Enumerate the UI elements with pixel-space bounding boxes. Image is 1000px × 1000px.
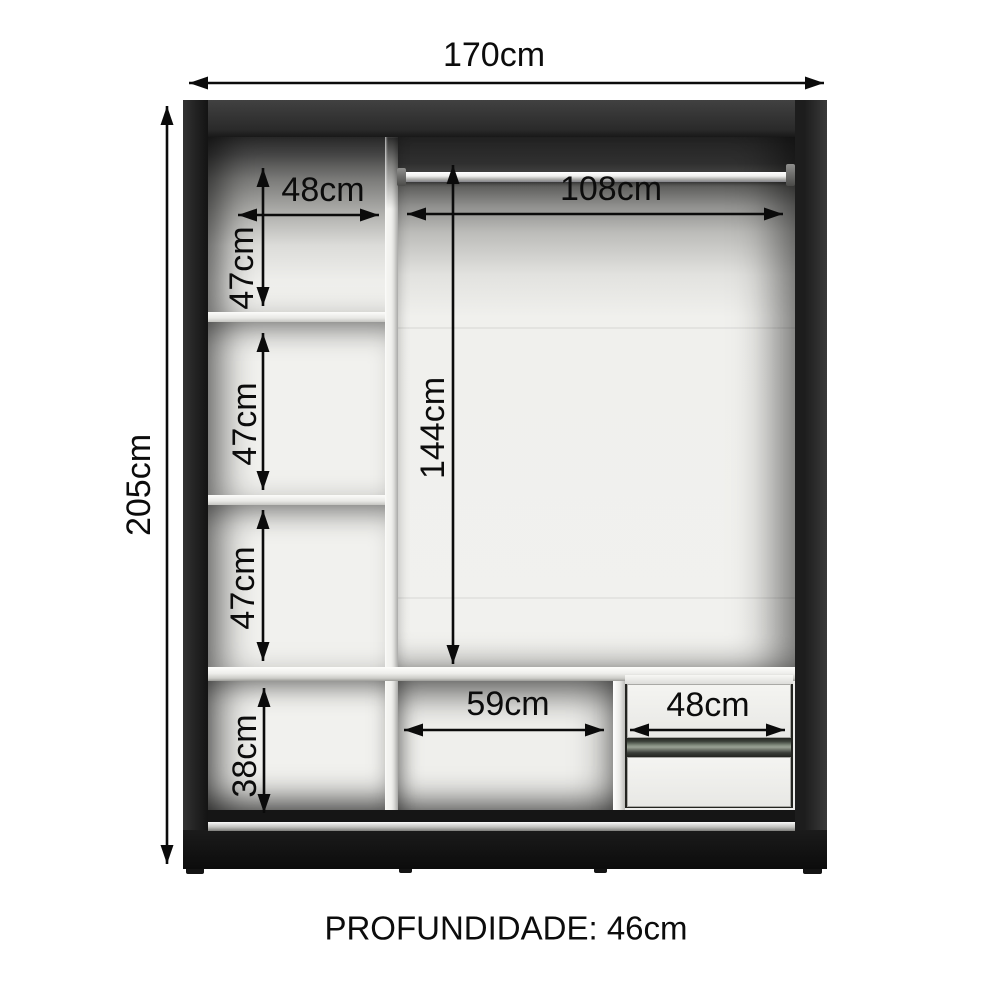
frame-top-band [183, 100, 827, 137]
center-divider-panel [385, 137, 398, 822]
drawer-bottom [627, 757, 791, 807]
foot-center-left [399, 869, 412, 873]
shelf-1 [208, 312, 385, 322]
frame-right-band [795, 100, 827, 869]
label-total-width: 170cm [443, 38, 545, 72]
foot-left [186, 869, 204, 874]
foot-right [803, 869, 822, 874]
rod-bracket-right [786, 164, 795, 186]
rod-bracket-left [397, 168, 406, 186]
label-total-height: 205cm [122, 434, 156, 536]
label-bottom-middle-width: 59cm [466, 687, 549, 721]
shelf-2 [208, 495, 385, 505]
interior-floor [208, 810, 795, 822]
depth-note: PROFUNDIDADE: 46cm [324, 912, 687, 945]
label-compartment3-height: 47cm [226, 546, 260, 629]
drawer-gap [627, 738, 791, 757]
sliding-door-rail [208, 822, 795, 831]
frame-base-plinth [183, 830, 827, 869]
label-compartment1-height: 47cm [225, 226, 259, 309]
label-hanging-width: 108cm [560, 172, 662, 206]
label-compartment2-height: 47cm [228, 382, 262, 465]
label-left-column-width: 48cm [281, 173, 364, 207]
frame-left-band [183, 100, 208, 869]
hanging-compartment [398, 137, 795, 667]
label-bottom-left-height: 38cm [228, 714, 262, 797]
drawer-unit-top-edge [625, 675, 793, 684]
back-panel-seam [398, 597, 795, 599]
back-panel-seam [398, 327, 795, 329]
wardrobe-dimension-diagram: 170cm 205cm 48cm 47cm 47cm 47cm 38cm 108… [0, 0, 1000, 1000]
drawer-divider-panel [613, 681, 625, 822]
foot-center-right [594, 869, 607, 873]
label-hanging-height: 144cm [416, 377, 450, 479]
label-drawer-width: 48cm [666, 688, 749, 722]
